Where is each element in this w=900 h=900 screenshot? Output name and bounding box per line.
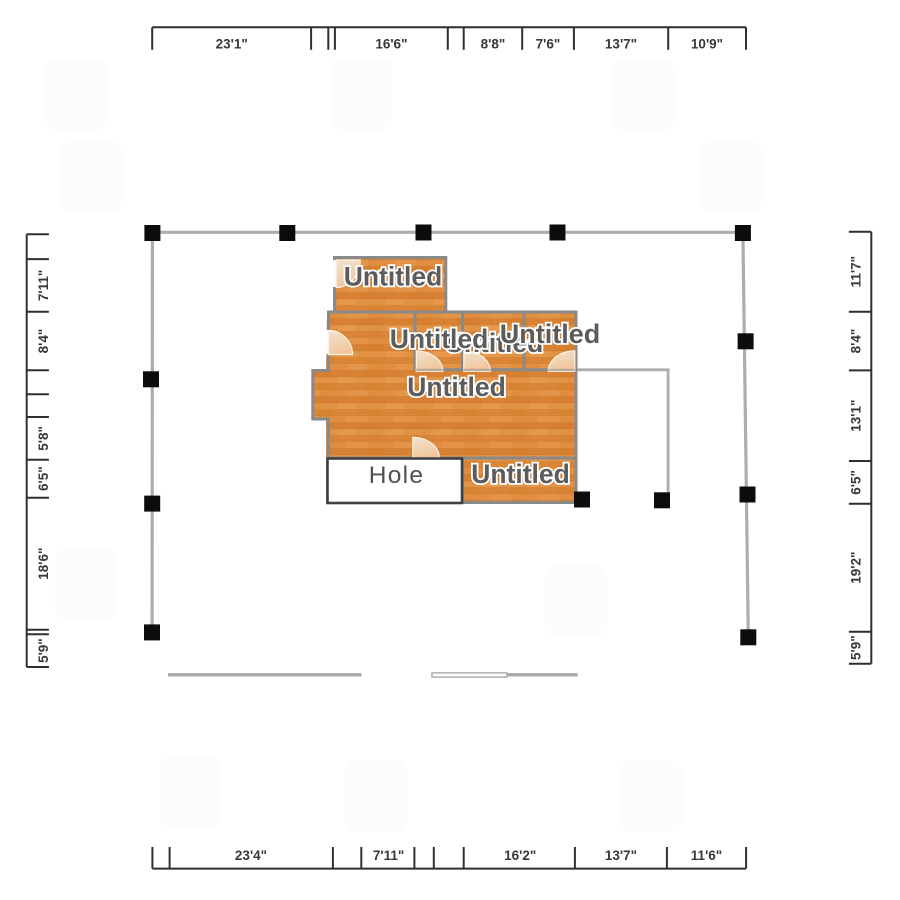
svg-text:7'6": 7'6" — [536, 37, 561, 52]
svg-text:5'9": 5'9" — [36, 638, 51, 663]
svg-text:6'5": 6'5" — [36, 466, 51, 491]
svg-text:13'1": 13'1" — [849, 400, 864, 432]
svg-text:Untitled: Untitled — [471, 459, 570, 489]
svg-text:23'4": 23'4" — [235, 848, 267, 863]
svg-text:Untitled: Untitled — [500, 319, 601, 349]
svg-text:Untitled: Untitled — [344, 262, 443, 292]
svg-text:Hole: Hole — [369, 462, 425, 489]
svg-text:19'2": 19'2" — [849, 552, 864, 584]
svg-text:5'9": 5'9" — [849, 635, 864, 660]
svg-text:Untitled: Untitled — [390, 324, 489, 354]
svg-text:13'7": 13'7" — [605, 37, 637, 52]
svg-text:6'5": 6'5" — [849, 470, 864, 495]
svg-text:11'7": 11'7" — [849, 256, 864, 287]
svg-text:8'4": 8'4" — [849, 329, 864, 354]
svg-text:7'11": 7'11" — [373, 848, 404, 863]
svg-text:13'7": 13'7" — [605, 848, 637, 863]
svg-text:16'2": 16'2" — [504, 848, 536, 863]
svg-text:18'6": 18'6" — [36, 548, 51, 580]
svg-text:8'8": 8'8" — [481, 37, 506, 52]
svg-text:23'1": 23'1" — [216, 37, 248, 52]
svg-text:Untitled: Untitled — [407, 372, 506, 402]
svg-text:8'4": 8'4" — [36, 329, 51, 354]
svg-text:7'11": 7'11" — [36, 270, 51, 301]
svg-text:11'6": 11'6" — [691, 848, 722, 863]
svg-text:16'6": 16'6" — [375, 37, 407, 52]
svg-text:5'8": 5'8" — [36, 426, 51, 451]
svg-text:10'9": 10'9" — [691, 37, 723, 52]
